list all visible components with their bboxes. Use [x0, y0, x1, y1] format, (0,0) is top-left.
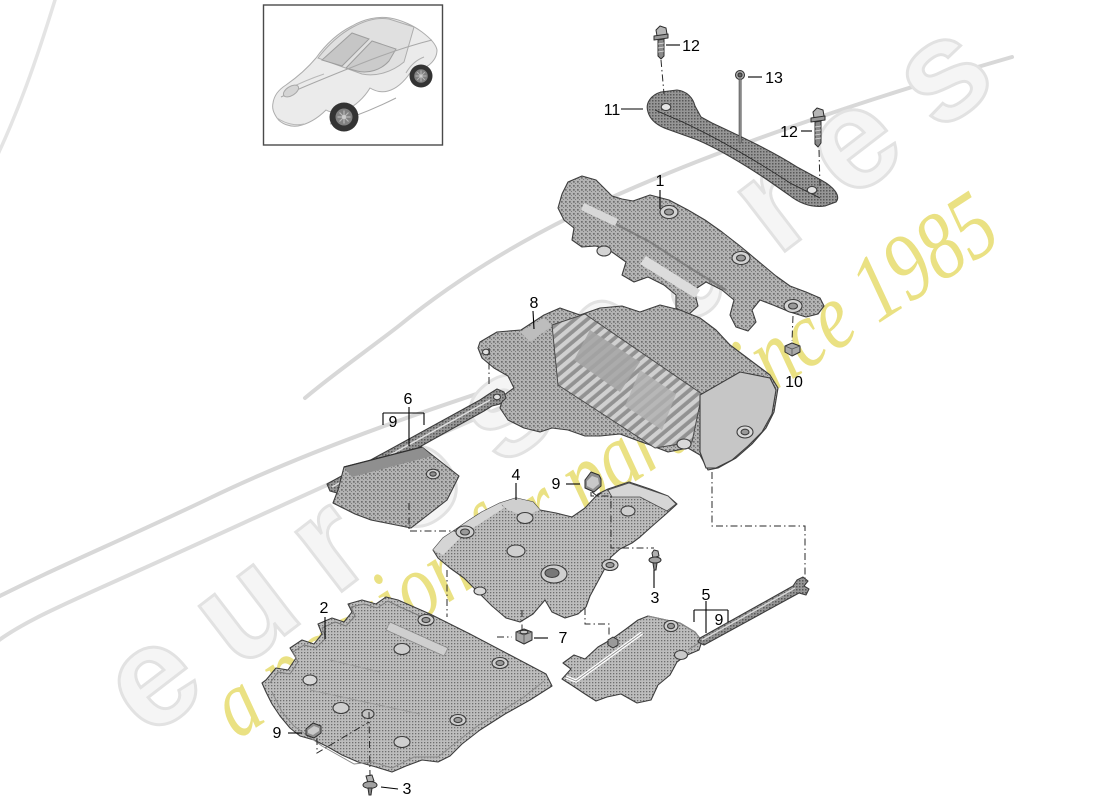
svg-text:9: 9 [273, 725, 282, 742]
svg-text:6: 6 [404, 391, 413, 408]
svg-text:5: 5 [702, 587, 711, 604]
svg-text:9: 9 [389, 414, 398, 431]
svg-text:12: 12 [780, 124, 798, 141]
svg-text:4: 4 [512, 467, 521, 484]
svg-text:12: 12 [682, 38, 700, 55]
svg-text:13: 13 [765, 70, 783, 87]
svg-text:9: 9 [552, 476, 561, 493]
svg-text:3: 3 [651, 590, 660, 607]
svg-text:9: 9 [715, 612, 724, 629]
svg-text:7: 7 [559, 630, 568, 647]
svg-text:1: 1 [656, 173, 665, 190]
svg-text:10: 10 [785, 374, 803, 391]
svg-text:3: 3 [403, 781, 412, 798]
svg-text:11: 11 [604, 102, 621, 119]
svg-text:2: 2 [320, 600, 329, 617]
svg-text:8: 8 [530, 295, 539, 312]
